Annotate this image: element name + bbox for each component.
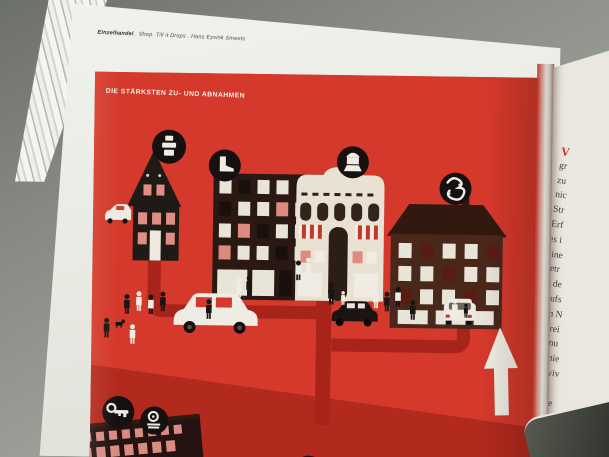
book-photo: Einzelhandel . Shop. Till it Drops . Han… xyxy=(0,0,609,457)
building-ornate-shop xyxy=(295,166,385,301)
right-page: V gr zu nic Str Erf es i eine betr in de… xyxy=(548,42,609,457)
infographic-illustration xyxy=(90,72,541,457)
open-book: Einzelhandel . Shop. Till it Drops . Han… xyxy=(0,0,609,457)
infographic-plate: DIE STÄRKSTEN ZU- UND ABNAHMEN xyxy=(90,72,541,457)
